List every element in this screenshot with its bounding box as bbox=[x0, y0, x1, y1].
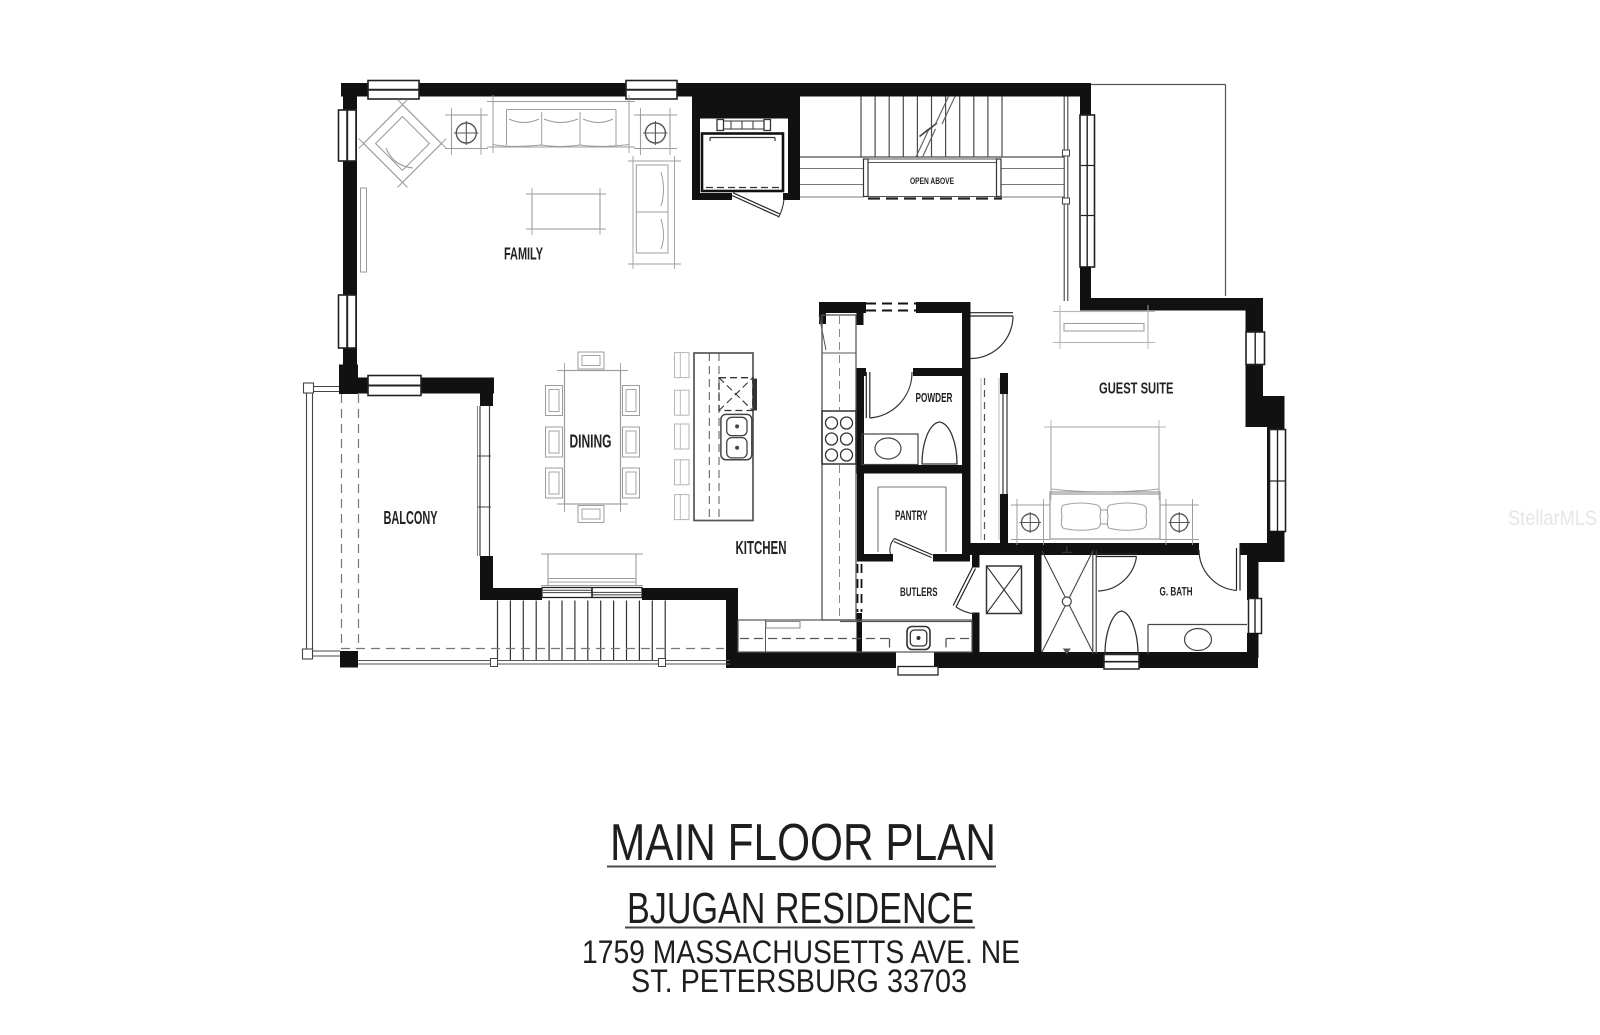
svg-text:BJUGAN RESIDENCE: BJUGAN RESIDENCE bbox=[627, 884, 974, 933]
svg-text:FAMILY: FAMILY bbox=[504, 244, 543, 264]
svg-text:MAIN FLOOR PLAN: MAIN FLOOR PLAN bbox=[610, 814, 996, 872]
svg-text:G. BATH: G. BATH bbox=[1160, 585, 1193, 599]
svg-text:BUTLERS: BUTLERS bbox=[900, 585, 938, 599]
svg-text:DINING: DINING bbox=[570, 432, 612, 452]
svg-text:StellarMLS: StellarMLS bbox=[1508, 507, 1597, 530]
svg-text:KITCHEN: KITCHEN bbox=[736, 538, 787, 558]
svg-text:ST. PETERSBURG 33703: ST. PETERSBURG 33703 bbox=[631, 963, 967, 999]
svg-text:PANTRY: PANTRY bbox=[895, 508, 928, 523]
svg-text:POWDER: POWDER bbox=[916, 391, 953, 405]
svg-text:OPEN ABOVE: OPEN ABOVE bbox=[910, 176, 954, 187]
svg-text:BALCONY: BALCONY bbox=[384, 508, 438, 528]
svg-text:GUEST SUITE: GUEST SUITE bbox=[1099, 381, 1174, 398]
